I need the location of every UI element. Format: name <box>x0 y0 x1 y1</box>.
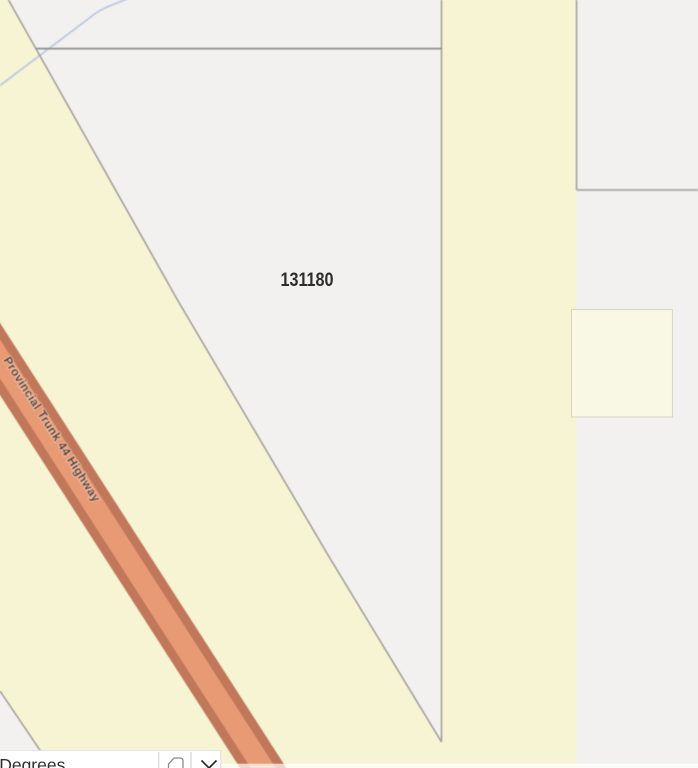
svg-text:131180: 131180 <box>281 269 334 291</box>
svg-text:Degrees: Degrees <box>0 755 66 768</box>
